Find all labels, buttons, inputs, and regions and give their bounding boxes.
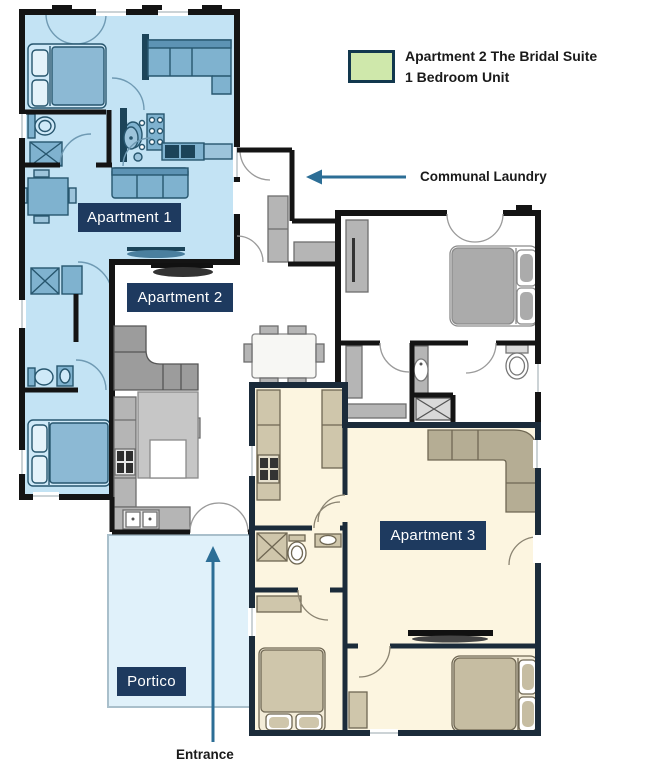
sink-counter-icon [114,507,190,532]
sink-icon [57,366,73,386]
wardrobe-icon [346,220,368,292]
closet-icon [346,346,362,398]
bed-icon [28,420,110,486]
portico-label: Portico [117,667,186,696]
toilet-icon [506,345,528,379]
apartment3-label: Apartment 3 [380,521,486,550]
kitchen-counter-icon [114,397,136,507]
corner-sofa-icon [114,326,198,390]
dining-table-icon [244,326,324,386]
legend-line1: Apartment 2 The Bridal Suite [405,46,597,67]
apartment1-label: Apartment 1 [78,203,181,232]
chaise-icon [138,392,198,478]
dining-table-icon [20,170,76,223]
bed-icon [452,656,538,732]
legend-text: Apartment 2 The Bridal Suite 1 Bedroom U… [405,46,597,88]
toilet-icon [28,368,53,386]
legend-line2: 1 Bedroom Unit [405,67,597,88]
tv-icon [151,263,213,277]
laundry-box-icon [257,533,287,561]
bridal-suite-unit [338,205,542,425]
dresser-icon [257,596,301,612]
living-couch-icon [112,168,188,198]
tv-icon [127,247,185,258]
wall-tick-mark [516,205,532,210]
washer-icon [268,196,288,262]
legend-swatch [348,50,395,83]
stove-counter-icon [162,143,232,160]
shelf-icon [346,404,406,418]
closet-icon [62,266,82,294]
bed-icon [28,44,106,108]
floorplan-drawing [0,0,661,768]
small-sink-icon [134,153,142,161]
corridor-door-opening [233,182,241,214]
apartment2-label: Apartment 2 [127,283,233,312]
toilet-icon [288,535,306,564]
bed-icon [259,648,325,732]
entrance-annotation: Entrance [176,747,234,762]
bed-icon [450,246,538,326]
communal-laundry-arrow-icon [306,170,406,185]
communal-laundry-annotation: Communal Laundry [420,169,547,184]
apartment3-unit [248,385,542,737]
sink-icon [315,534,341,547]
laundry-box-icon [416,398,452,420]
laundry-box-icon [30,142,62,166]
dresser-icon [349,692,367,728]
laundry-box-icon [31,268,59,294]
entry-door-opening [447,208,503,218]
floorplan-page: Apartment 2 The Bridal Suite 1 Bedroom U… [0,0,661,768]
